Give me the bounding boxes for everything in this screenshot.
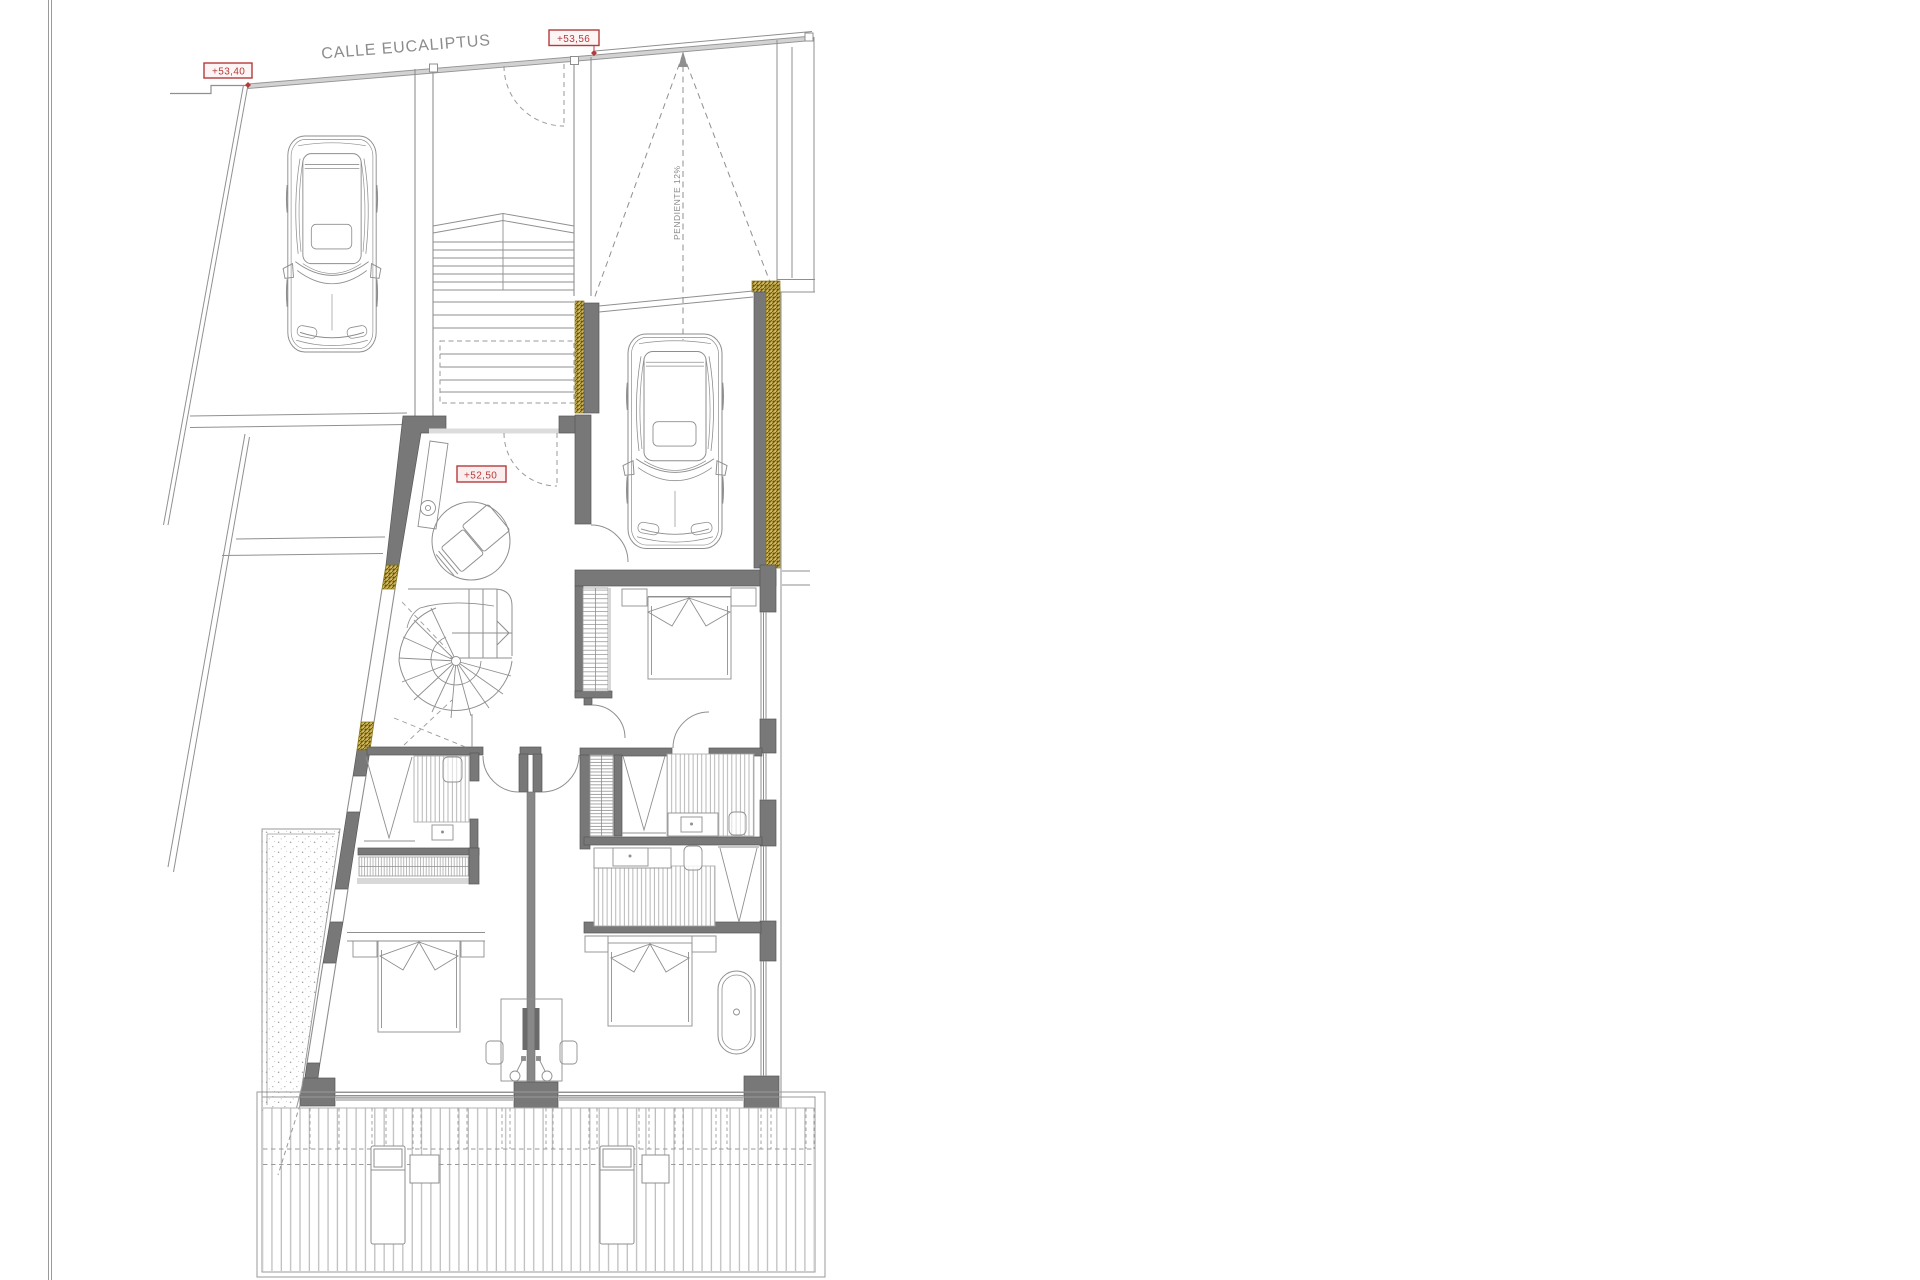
svg-text:+53,56: +53,56 bbox=[557, 34, 590, 45]
svg-text:PENDIENTE 12%: PENDIENTE 12% bbox=[672, 165, 682, 240]
svg-text:+53,40: +53,40 bbox=[212, 67, 245, 78]
svg-text:+52,50: +52,50 bbox=[464, 471, 497, 482]
